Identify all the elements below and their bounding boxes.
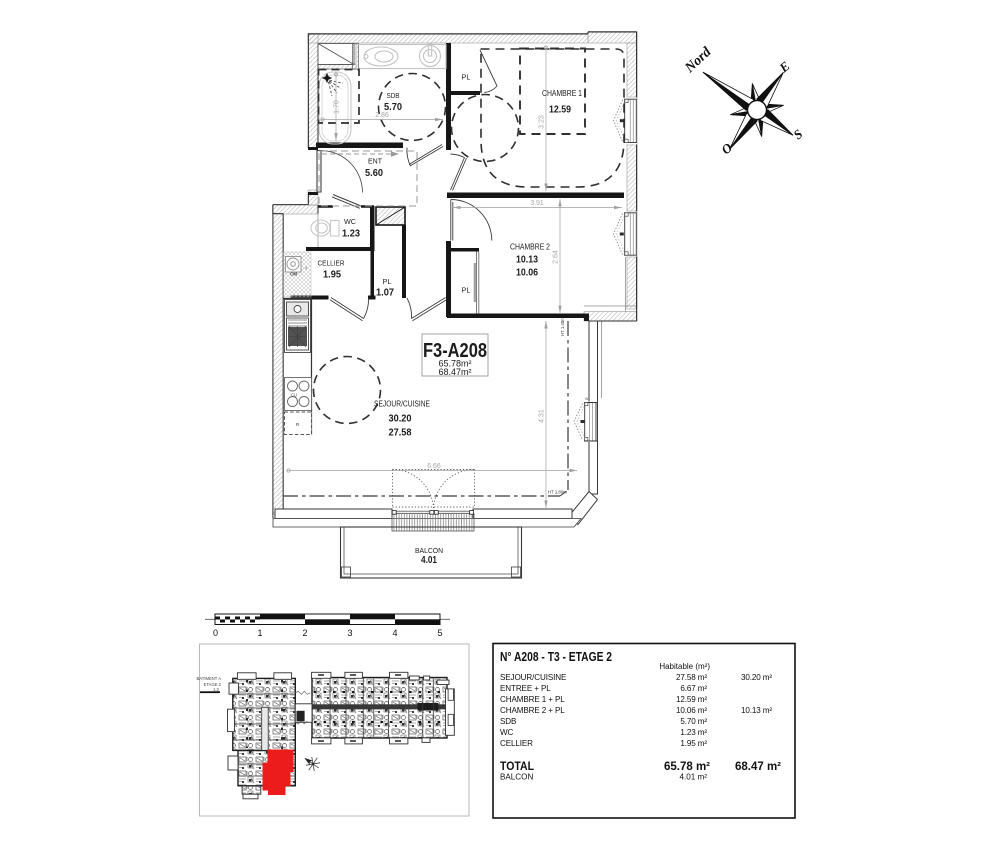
svg-text:0: 0 <box>213 628 218 638</box>
svg-text:27.58: 27.58 <box>389 427 412 439</box>
svg-text:10.06 m²: 10.06 m² <box>676 706 707 715</box>
svg-text:1.95: 1.95 <box>323 269 341 281</box>
svg-text:SDB: SDB <box>387 91 400 100</box>
svg-text:SDB: SDB <box>500 717 516 726</box>
svg-text:BATIMENT A: BATIMENT A <box>196 676 221 681</box>
svg-text:27.58 m²: 27.58 m² <box>676 673 707 682</box>
svg-text:CHAMBRE 1: CHAMBRE 1 <box>542 89 582 98</box>
svg-text:1.70: 1.70 <box>334 100 341 114</box>
svg-text:CHAMBRE 2: CHAMBRE 2 <box>510 243 550 252</box>
svg-text:SEJOUR/CUISINE: SEJOUR/CUISINE <box>374 400 430 409</box>
svg-text:TOTAL: TOTAL <box>500 761 534 773</box>
svg-text:CM: CM <box>290 272 297 277</box>
svg-text:WC: WC <box>344 217 357 226</box>
svg-text:1.95 m²: 1.95 m² <box>680 739 707 748</box>
svg-text:BALCON: BALCON <box>415 546 443 555</box>
svg-text:SEJOUR/CUISINE: SEJOUR/CUISINE <box>500 673 567 682</box>
svg-text:HT 1,40m: HT 1,40m <box>560 317 565 336</box>
svg-text:PL: PL <box>462 286 471 295</box>
svg-text:30.20: 30.20 <box>389 413 412 425</box>
svg-text:4: 4 <box>392 628 397 638</box>
svg-text:65.78 m²: 65.78 m² <box>664 761 710 773</box>
svg-text:6.67 m²: 6.67 m² <box>680 684 707 693</box>
svg-text:68.47m²: 68.47m² <box>438 367 471 377</box>
svg-text:ENT: ENT <box>368 157 382 166</box>
svg-text:2.64: 2.64 <box>553 250 560 264</box>
svg-text:WC: WC <box>500 728 514 737</box>
svg-text:5.70: 5.70 <box>384 101 402 113</box>
svg-text:6.66: 6.66 <box>427 463 441 470</box>
svg-text:N° A208 - T3 - ETAGE 2: N° A208 - T3 - ETAGE 2 <box>500 650 612 664</box>
svg-text:CHAMBRE 2 + PL: CHAMBRE 2 + PL <box>500 706 565 715</box>
svg-text:68.47 m²: 68.47 m² <box>735 761 781 773</box>
svg-text:1: 1 <box>257 628 262 638</box>
svg-text:2.86: 2.86 <box>375 112 389 119</box>
svg-text:ENTREE + PL: ENTREE + PL <box>500 684 551 693</box>
svg-text:3.91: 3.91 <box>530 200 544 207</box>
svg-text:5: 5 <box>437 628 442 638</box>
svg-text:HT 1,80m: HT 1,80m <box>548 490 567 495</box>
svg-text:4.31: 4.31 <box>539 409 546 423</box>
svg-text:12.59: 12.59 <box>549 104 571 116</box>
svg-text:30.20 m²: 30.20 m² <box>741 673 772 682</box>
svg-text:1.23 m²: 1.23 m² <box>680 728 707 737</box>
svg-text:CELLIER: CELLIER <box>318 259 346 268</box>
svg-text:10.13 m²: 10.13 m² <box>741 706 772 715</box>
svg-text:5.60: 5.60 <box>365 167 383 179</box>
svg-text:CHAMBRE 1 + PL: CHAMBRE 1 + PL <box>500 695 565 704</box>
svg-text:CELLIER: CELLIER <box>500 739 533 748</box>
svg-text:10.13: 10.13 <box>516 254 538 266</box>
svg-text:1.23: 1.23 <box>342 228 360 240</box>
svg-text:2: 2 <box>302 628 307 638</box>
svg-text:10.06: 10.06 <box>516 267 538 279</box>
svg-text:PL: PL <box>462 73 471 82</box>
svg-text:3.23: 3.23 <box>539 115 546 129</box>
svg-text:4.01: 4.01 <box>421 555 437 566</box>
svg-text:5.70 m²: 5.70 m² <box>680 717 707 726</box>
svg-text:3: 3 <box>347 628 352 638</box>
svg-text:Habitable (m²): Habitable (m²) <box>659 662 710 671</box>
svg-text:1.07: 1.07 <box>376 287 394 299</box>
svg-text:BALCON: BALCON <box>500 773 533 782</box>
svg-text:12.59 m²: 12.59 m² <box>676 695 707 704</box>
svg-text:PL: PL <box>383 277 392 286</box>
svg-text:1:2: 1:2 <box>213 687 219 692</box>
svg-text:4.01 m²: 4.01 m² <box>680 773 708 782</box>
svg-text:CU: CU <box>291 393 297 398</box>
